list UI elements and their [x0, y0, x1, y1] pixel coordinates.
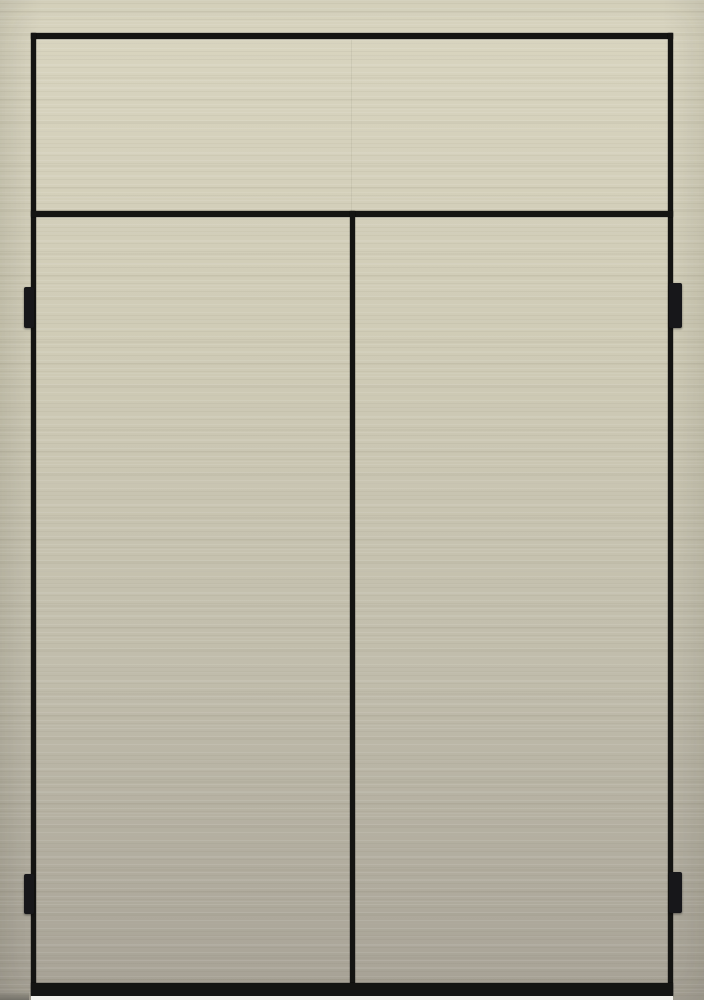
right-door-panel	[355, 217, 668, 983]
drawer-front-seam	[351, 40, 352, 211]
hinge-left-bottom	[24, 874, 34, 914]
cabinet-photo	[0, 0, 704, 1000]
center-door-gap	[350, 211, 355, 996]
bottom-toe-band	[31, 983, 673, 996]
top-reveal-gap	[31, 33, 673, 39]
hinge-right-top	[669, 283, 682, 328]
floor-shadow	[0, 991, 29, 1000]
drawer-front-panel	[37, 39, 668, 211]
left-reveal-gap	[31, 33, 36, 996]
hinge-right-bottom	[669, 872, 682, 913]
left-door-panel	[36, 217, 350, 983]
hinge-left-top	[24, 287, 34, 328]
floor-strip	[31, 996, 673, 1000]
right-reveal-gap	[668, 33, 673, 996]
